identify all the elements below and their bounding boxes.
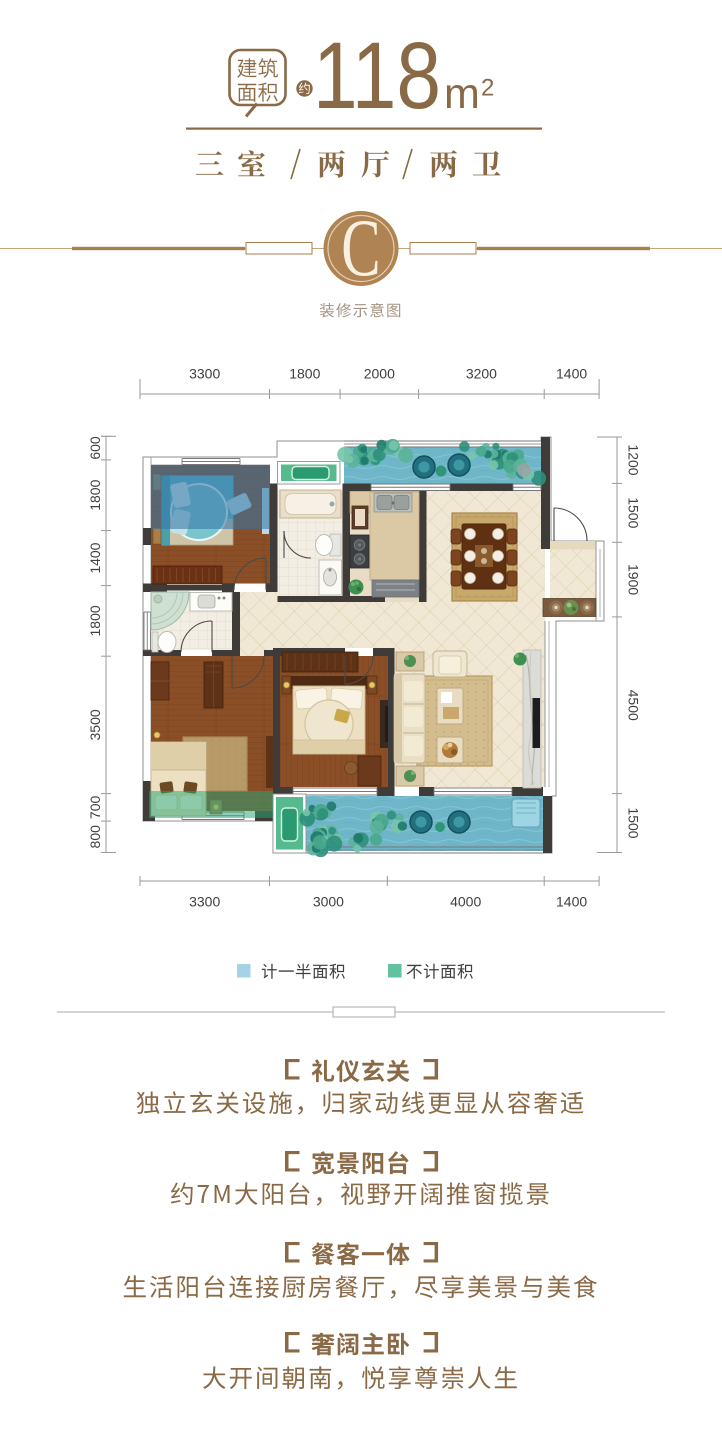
svg-text:C: C	[341, 203, 380, 294]
svg-text:1500: 1500	[626, 807, 642, 838]
svg-text:700: 700	[87, 796, 103, 820]
svg-text:1800: 1800	[87, 479, 103, 510]
svg-text:1800: 1800	[87, 605, 103, 636]
svg-text:1900: 1900	[626, 564, 642, 595]
svg-text:118: 118	[313, 23, 441, 129]
svg-text:2000: 2000	[364, 366, 395, 382]
svg-text:3300: 3300	[189, 366, 220, 382]
svg-text:2: 2	[481, 75, 494, 102]
svg-text:1800: 1800	[289, 366, 320, 382]
svg-text:3300: 3300	[189, 894, 220, 910]
svg-text:1400: 1400	[556, 366, 587, 382]
svg-text:1500: 1500	[626, 497, 642, 528]
svg-text:1400: 1400	[556, 894, 587, 910]
svg-text:1200: 1200	[626, 444, 642, 475]
svg-text:4000: 4000	[450, 894, 481, 910]
svg-text:4500: 4500	[626, 690, 642, 721]
svg-text:3000: 3000	[313, 894, 344, 910]
svg-text:600: 600	[87, 436, 103, 460]
svg-text:3500: 3500	[87, 709, 103, 740]
svg-text:3200: 3200	[466, 366, 497, 382]
svg-text:1400: 1400	[87, 542, 103, 573]
svg-text:800: 800	[87, 825, 103, 849]
svg-text:m: m	[444, 70, 480, 118]
